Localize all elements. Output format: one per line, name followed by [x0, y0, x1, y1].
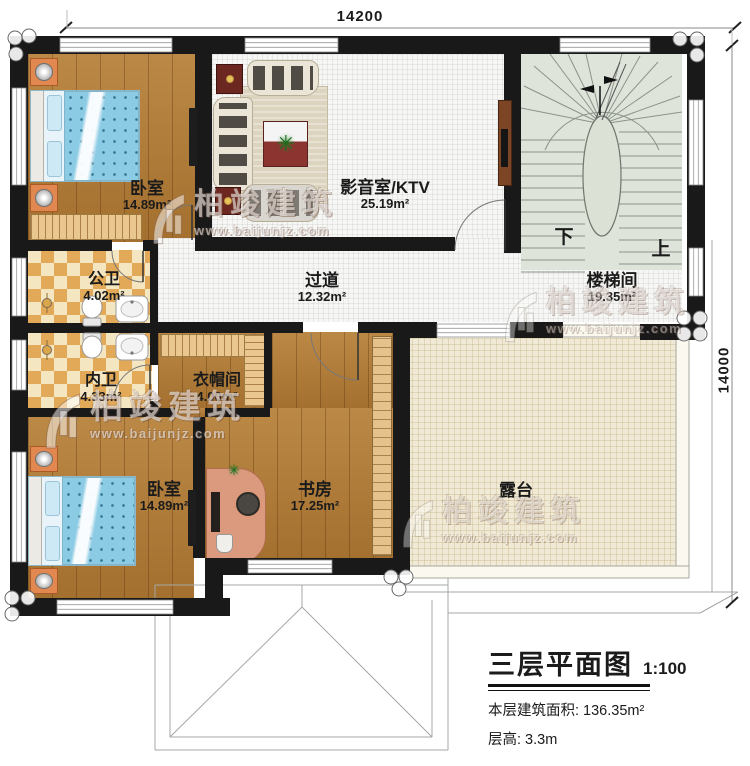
room-label-media-room: 影音室/KTV 25.19m²: [340, 178, 430, 212]
room-area: 4.02m²: [83, 289, 124, 304]
tv: [188, 490, 196, 546]
scale-label: 1:100: [643, 659, 686, 679]
room-name: 影音室/KTV: [340, 178, 430, 197]
room-label-private-bath: 内卫 4.33m²: [80, 372, 121, 404]
room-name: 公卫: [83, 271, 124, 289]
room-name: 过道: [298, 271, 346, 290]
room-area: 12.32m²: [298, 290, 346, 305]
tv-cabinet: [498, 100, 512, 186]
tv: [189, 108, 197, 166]
floor-plan-sheet: ✳ ✳: [0, 0, 750, 766]
room-area: 25.19m²: [340, 197, 430, 212]
room-area: 14.89m²: [123, 198, 171, 213]
terrace-parapet: [400, 325, 689, 578]
room-name: 卧室: [140, 480, 188, 499]
dimension-top: 14200: [337, 8, 384, 25]
room-label-terrace: 露台: [499, 481, 533, 500]
room-area: 4.33m²: [80, 390, 121, 405]
room-area: 4.00m²: [193, 390, 241, 405]
room-name: 卧室: [123, 179, 171, 198]
room-label-hallway: 过道 12.32m²: [298, 271, 346, 305]
room-label-cloakroom: 衣帽间 4.00m²: [193, 372, 241, 404]
floor-height-label: 层高: 3.3m: [488, 728, 738, 749]
room-area: 14.89m²: [140, 499, 188, 514]
room-label-bedroom-top: 卧室 14.89m²: [123, 179, 171, 213]
room-label-study: 书房 17.25m²: [291, 480, 339, 514]
room-label-public-bath: 公卫 4.02m²: [83, 271, 124, 303]
room-label-bedroom-bottom: 卧室 14.89m²: [140, 480, 188, 514]
stair-up-label: 上: [651, 234, 670, 261]
room-area: 19.35m²: [587, 290, 638, 305]
floor-area-label: 本层建筑面积: 136.35m²: [488, 699, 738, 720]
room-name: 衣帽间: [193, 372, 241, 390]
page-title: 三层平面图: [488, 643, 633, 682]
room-name: 露台: [499, 481, 533, 500]
room-name: 内卫: [80, 372, 121, 390]
dimension-right: 14000: [716, 347, 733, 394]
room-area: 17.25m²: [291, 499, 339, 514]
title-underline: [488, 684, 650, 691]
title-block: 三层平面图 1:100 本层建筑面积: 136.35m² 层高: 3.3m: [488, 643, 738, 749]
room-name: 书房: [291, 480, 339, 499]
room-label-stairwell: 楼梯间 19.35m²: [587, 271, 638, 305]
stair-down-label: 下: [554, 222, 573, 249]
tv: [501, 129, 508, 167]
room-name: 楼梯间: [587, 271, 638, 290]
